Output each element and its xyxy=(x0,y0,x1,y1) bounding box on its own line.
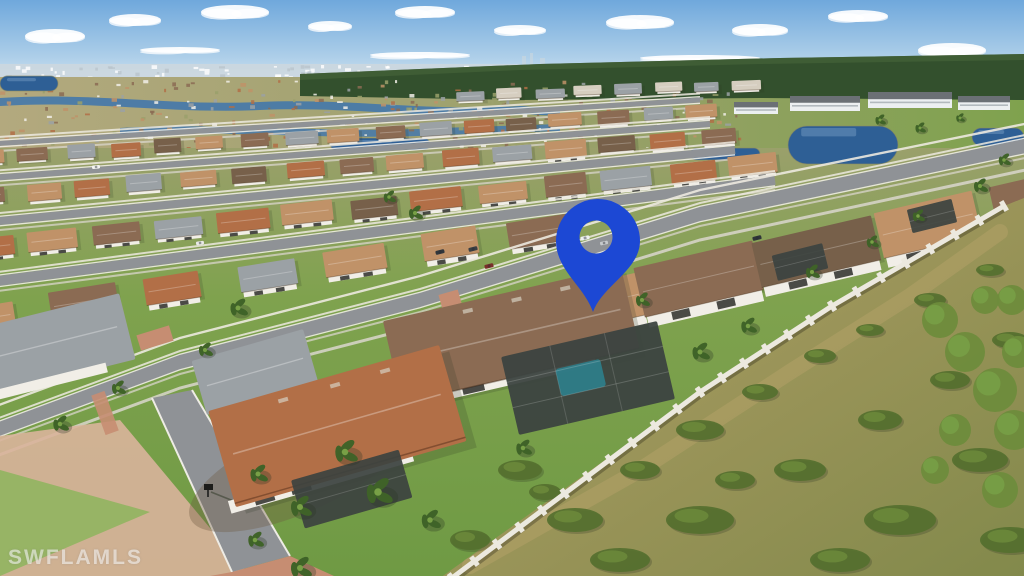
cloud xyxy=(201,5,269,20)
distant-building xyxy=(290,67,294,70)
distant-building xyxy=(51,68,53,71)
distant-building xyxy=(63,71,65,75)
distant-house xyxy=(132,82,134,85)
cloud xyxy=(494,25,546,36)
distant-house xyxy=(19,130,25,133)
house xyxy=(456,91,488,105)
distant-house xyxy=(97,95,99,97)
distant-house xyxy=(165,116,168,118)
distant-house xyxy=(7,101,11,104)
house xyxy=(496,87,525,102)
distant-house xyxy=(416,104,418,107)
distant-house xyxy=(54,122,58,124)
lake xyxy=(0,76,58,91)
distant-house xyxy=(455,90,460,92)
distant-house xyxy=(358,96,363,98)
distant-house xyxy=(683,112,685,114)
lake xyxy=(788,126,898,164)
distant-house xyxy=(85,114,90,116)
distant-house xyxy=(141,118,145,121)
distant-house xyxy=(45,107,48,111)
distant-building xyxy=(301,65,305,69)
distant-house xyxy=(10,131,15,135)
distant-house xyxy=(409,94,414,98)
distant-house xyxy=(151,111,153,114)
distant-house xyxy=(723,113,726,116)
distant-house xyxy=(324,112,330,114)
distant-house xyxy=(725,124,731,126)
distant-building xyxy=(219,66,225,68)
distant-house xyxy=(337,101,343,103)
distant-house xyxy=(71,117,74,119)
distant-house xyxy=(319,99,324,102)
house xyxy=(339,157,377,177)
house xyxy=(535,88,568,102)
distant-building xyxy=(225,69,229,71)
house xyxy=(125,173,165,196)
distant-house xyxy=(75,115,78,117)
distant-house xyxy=(78,101,83,104)
distant-house xyxy=(563,81,567,85)
distant-building xyxy=(287,68,290,71)
distant-house xyxy=(293,99,295,102)
distant-house xyxy=(117,105,121,107)
house xyxy=(154,137,185,156)
house xyxy=(74,178,114,201)
distant-house xyxy=(364,134,367,136)
distant-house xyxy=(358,86,362,89)
distant-house xyxy=(125,87,129,89)
tree xyxy=(939,414,971,446)
distant-house xyxy=(215,91,218,94)
distant-house xyxy=(156,113,162,115)
house xyxy=(27,182,66,205)
house xyxy=(655,81,686,95)
listing-aerial-photo[interactable]: SWFLAMLS xyxy=(0,0,1024,576)
distant-house xyxy=(184,115,187,119)
condo-building xyxy=(790,96,860,111)
distant-house xyxy=(493,93,496,97)
distant-building xyxy=(79,68,82,71)
distant-house xyxy=(24,119,26,122)
distant-building xyxy=(321,65,324,68)
distant-house xyxy=(717,121,722,124)
distant-house xyxy=(707,100,713,104)
distant-house xyxy=(251,100,254,104)
distant-house xyxy=(411,101,415,104)
distant-house xyxy=(238,89,241,92)
distant-building xyxy=(199,69,204,71)
distant-house xyxy=(295,81,298,83)
distant-house xyxy=(191,82,195,84)
distant-building xyxy=(152,65,158,69)
distant-house xyxy=(385,80,388,84)
cloud xyxy=(140,47,220,54)
distant-house xyxy=(174,87,178,90)
distant-house xyxy=(735,115,737,118)
distant-house xyxy=(261,94,265,97)
distant-house xyxy=(313,94,316,96)
tree xyxy=(971,286,999,314)
distant-house xyxy=(214,99,217,102)
distant-house xyxy=(154,101,158,104)
cloud xyxy=(25,29,85,44)
distant-house xyxy=(434,101,438,103)
house xyxy=(614,83,645,98)
condo-building xyxy=(958,96,1010,110)
distant-house xyxy=(120,109,125,112)
distant-building xyxy=(157,72,159,74)
tree xyxy=(922,302,958,338)
distant-building xyxy=(16,66,21,70)
skyline-tower xyxy=(522,56,526,66)
distant-house xyxy=(292,108,295,110)
distant-house xyxy=(330,96,333,99)
distant-house xyxy=(8,104,10,106)
distant-house xyxy=(713,94,719,96)
house xyxy=(180,169,221,190)
distant-house xyxy=(116,84,120,86)
house xyxy=(195,135,226,152)
distant-house xyxy=(25,93,27,95)
distant-house xyxy=(143,80,148,83)
distant-building xyxy=(108,66,113,68)
house xyxy=(16,147,51,165)
distant-house xyxy=(172,82,176,86)
distant-building xyxy=(275,74,281,77)
distant-building xyxy=(308,71,312,73)
distant-house xyxy=(0,91,5,94)
distant-house xyxy=(95,83,98,86)
tree xyxy=(921,456,949,484)
distant-house xyxy=(187,101,189,103)
distant-building xyxy=(227,73,229,75)
distant-house xyxy=(381,85,385,88)
distant-house xyxy=(499,123,504,125)
distant-house xyxy=(487,101,491,104)
cloud xyxy=(370,52,470,59)
distant-building xyxy=(118,71,122,75)
distant-building xyxy=(55,71,57,73)
distant-house xyxy=(727,92,730,96)
house xyxy=(241,132,273,150)
distant-house xyxy=(47,116,52,118)
distant-house xyxy=(112,98,117,102)
distant-building xyxy=(386,66,389,69)
condo-building xyxy=(868,92,952,108)
distant-house xyxy=(582,83,586,85)
cloud xyxy=(109,14,161,27)
distant-building xyxy=(285,75,289,77)
distant-building xyxy=(165,69,169,73)
cloud xyxy=(828,10,888,23)
skyline-tower xyxy=(530,53,533,66)
distant-house xyxy=(539,121,544,124)
distant-house xyxy=(395,80,397,83)
house xyxy=(573,85,605,99)
distant-building xyxy=(135,73,139,77)
distant-house xyxy=(270,114,275,117)
house xyxy=(731,80,764,94)
distant-house xyxy=(524,87,527,89)
distant-house xyxy=(50,130,55,132)
house xyxy=(231,166,270,187)
distant-house xyxy=(226,81,230,83)
distant-house xyxy=(240,83,246,87)
distant-house xyxy=(229,106,235,108)
distant-house xyxy=(537,114,539,116)
aerial-photo-scene xyxy=(0,0,1024,576)
distant-house xyxy=(409,129,414,131)
house xyxy=(385,153,427,174)
distant-building xyxy=(305,66,311,69)
distant-house xyxy=(268,108,270,110)
distant-house xyxy=(511,83,515,86)
tree xyxy=(982,472,1018,508)
cloud xyxy=(606,15,674,30)
cloud xyxy=(732,24,788,37)
distant-building xyxy=(366,66,370,68)
distant-house xyxy=(164,89,166,92)
distant-house xyxy=(381,104,386,107)
distant-building xyxy=(274,66,277,68)
distant-house xyxy=(189,119,193,121)
distant-house xyxy=(343,106,347,109)
distant-building xyxy=(95,68,98,71)
distant-house xyxy=(296,103,302,106)
distant-house xyxy=(59,92,64,96)
distant-house xyxy=(435,94,439,98)
distant-house xyxy=(391,108,395,110)
distant-building xyxy=(22,69,27,73)
distant-house xyxy=(121,95,123,98)
condo-building xyxy=(734,102,778,114)
distant-house xyxy=(391,101,395,105)
distant-house xyxy=(211,107,214,110)
distant-house xyxy=(248,89,252,92)
cloud xyxy=(308,21,352,32)
distant-house xyxy=(233,133,236,136)
tree xyxy=(945,332,985,372)
distant-building xyxy=(162,73,165,77)
distant-house xyxy=(385,96,388,98)
distant-house xyxy=(278,80,280,83)
distant-house xyxy=(347,89,350,92)
distant-house xyxy=(693,135,696,137)
distant-building xyxy=(338,65,341,68)
house xyxy=(111,142,144,161)
cloud xyxy=(395,6,455,19)
distant-house xyxy=(273,144,278,148)
distant-building xyxy=(205,69,210,73)
tree xyxy=(973,368,1017,412)
distant-house xyxy=(63,108,68,111)
distant-house xyxy=(49,121,54,124)
watermark: SWFLAMLS xyxy=(8,546,143,570)
house xyxy=(287,160,329,181)
distant-house xyxy=(189,103,194,107)
distant-house xyxy=(406,108,411,111)
distant-house xyxy=(250,105,255,109)
distant-house xyxy=(441,97,445,101)
distant-house xyxy=(186,84,190,87)
distant-building xyxy=(205,73,210,75)
distant-building xyxy=(194,67,199,69)
distant-building xyxy=(345,68,351,71)
distant-house xyxy=(494,101,500,105)
distant-house xyxy=(459,127,464,130)
house xyxy=(67,143,99,162)
